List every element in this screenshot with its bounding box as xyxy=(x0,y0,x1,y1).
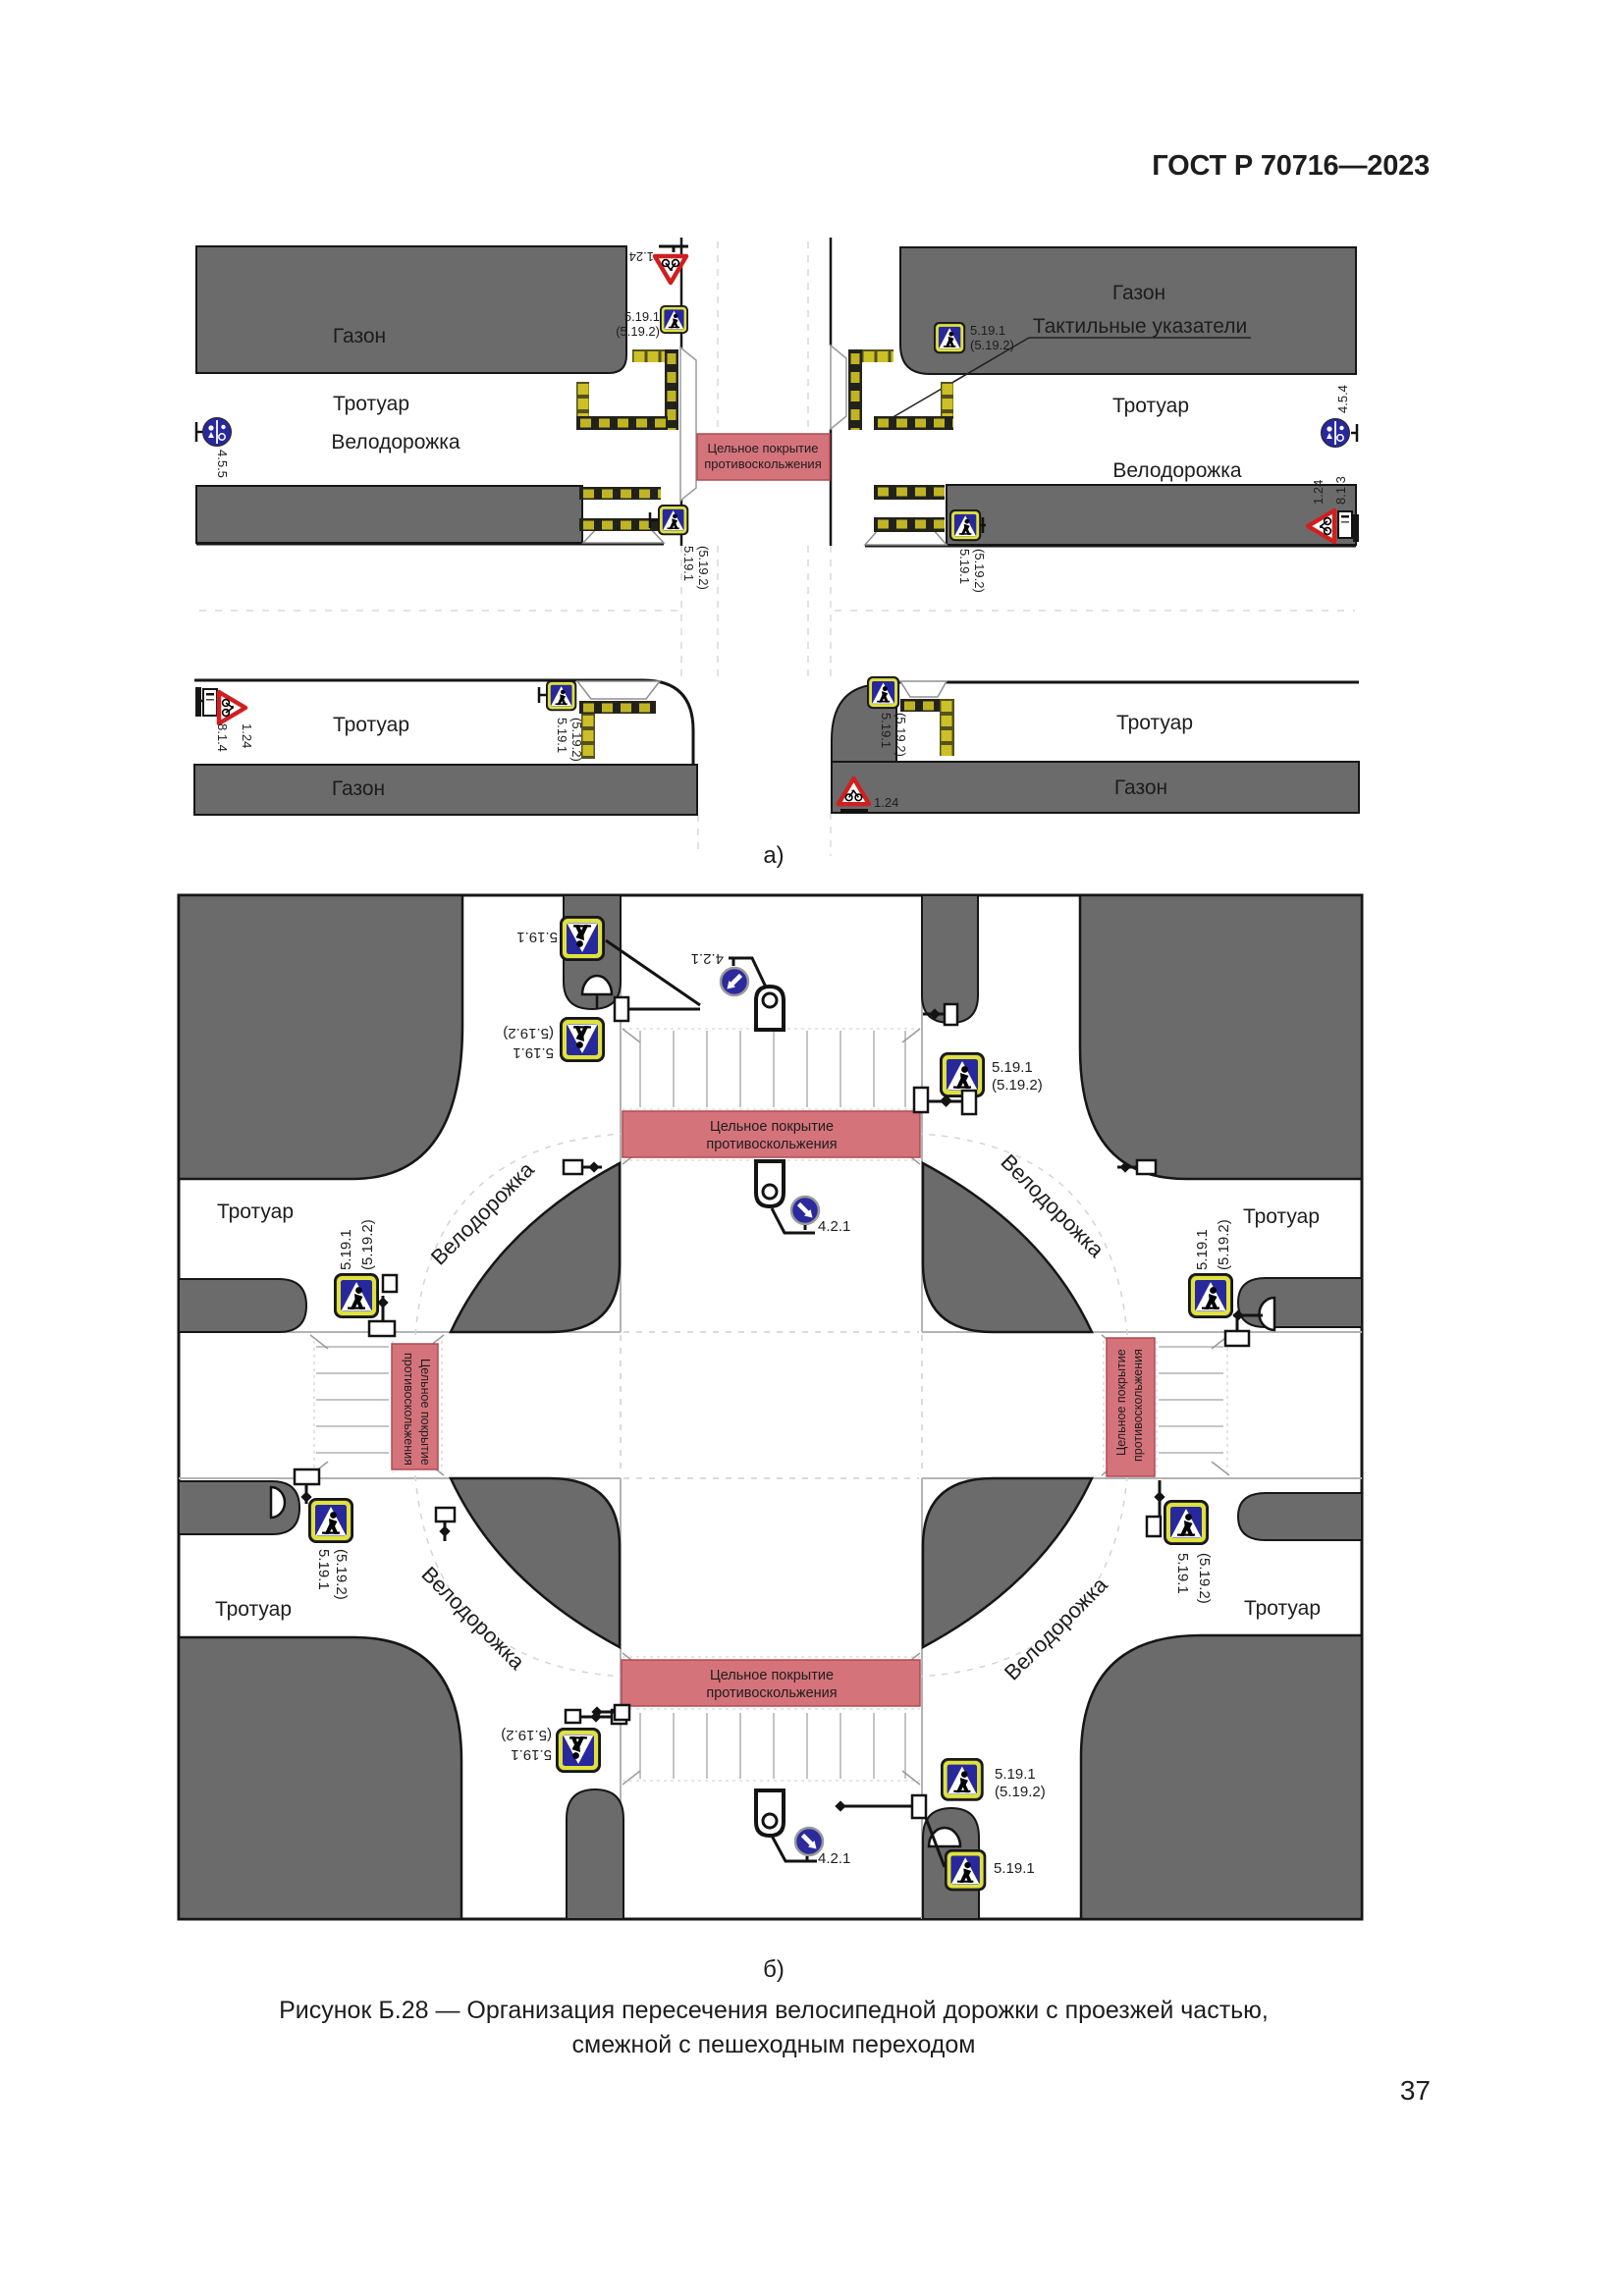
svg-text:(5.19.2): (5.19.2) xyxy=(501,1727,552,1743)
svg-text:5.19.1: 5.19.1 xyxy=(315,1549,332,1590)
svg-text:1.24: 1.24 xyxy=(1311,480,1326,505)
svg-text:Газон: Газон xyxy=(1112,282,1165,304)
svg-text:(5.19.2): (5.19.2) xyxy=(359,1219,376,1270)
svg-text:(5.19.2): (5.19.2) xyxy=(616,324,660,339)
svg-text:Цельное покрытие: Цельное покрытие xyxy=(710,1668,834,1683)
svg-text:противоскольжения: противоскольжения xyxy=(706,1137,837,1152)
svg-text:Цельное покрытие: Цельное покрытие xyxy=(1114,1349,1128,1456)
svg-text:ГОСТ Р 70716—2023: ГОСТ Р 70716—2023 xyxy=(1152,150,1430,182)
svg-text:противоскольжения: противоскольжения xyxy=(1131,1349,1145,1462)
svg-text:8.1.4: 8.1.4 xyxy=(215,723,230,752)
svg-text:4.2.1: 4.2.1 xyxy=(818,1218,850,1235)
svg-text:Тротуар: Тротуар xyxy=(1112,395,1189,417)
svg-text:Тактильные указатели: Тактильные указатели xyxy=(1033,315,1248,338)
svg-text:(5.19.2): (5.19.2) xyxy=(995,1784,1046,1800)
svg-text:Тротуар: Тротуар xyxy=(1116,712,1193,734)
svg-text:5.19.1: 5.19.1 xyxy=(338,1229,354,1270)
svg-text:4.5.5: 4.5.5 xyxy=(215,450,230,478)
svg-text:Тротуар: Тротуар xyxy=(1244,1597,1321,1620)
svg-text:Газон: Газон xyxy=(333,325,386,347)
svg-text:5.19.1: 5.19.1 xyxy=(555,718,569,753)
svg-text:Цельное покрытие: Цельное покрытие xyxy=(707,441,818,455)
svg-text:4.2.1: 4.2.1 xyxy=(691,950,724,967)
svg-text:противоскольжения: противоскольжения xyxy=(704,456,821,471)
svg-text:смежной с пешеходным переходом: смежной с пешеходным переходом xyxy=(572,2031,976,2058)
svg-text:5.19.1: 5.19.1 xyxy=(1194,1229,1211,1270)
svg-text:1.24: 1.24 xyxy=(240,723,254,748)
svg-text:(5.19.2): (5.19.2) xyxy=(696,546,711,590)
svg-text:Велодорожка: Велодорожка xyxy=(331,431,460,454)
svg-text:5.19.1: 5.19.1 xyxy=(995,1766,1036,1783)
svg-text:(5.19.2): (5.19.2) xyxy=(1216,1219,1232,1270)
svg-text:(5.19.2): (5.19.2) xyxy=(1196,1553,1213,1604)
svg-text:б): б) xyxy=(763,1956,785,1983)
svg-text:8.1.3: 8.1.3 xyxy=(1333,476,1348,505)
svg-text:Цельное покрытие: Цельное покрытие xyxy=(418,1359,432,1466)
svg-text:Газон: Газон xyxy=(1114,776,1167,799)
svg-text:Велодорожка: Велодорожка xyxy=(1112,459,1241,482)
svg-text:5.19.1: 5.19.1 xyxy=(511,1746,552,1763)
svg-text:Тротуар: Тротуар xyxy=(215,1598,292,1621)
svg-text:5.19.1: 5.19.1 xyxy=(1174,1553,1191,1594)
svg-text:5.19.1: 5.19.1 xyxy=(879,713,893,748)
svg-text:5.19.1: 5.19.1 xyxy=(992,1059,1033,1076)
svg-text:5.19.1: 5.19.1 xyxy=(957,549,972,584)
svg-text:(5.19.2): (5.19.2) xyxy=(972,549,987,593)
svg-text:(5.19.2): (5.19.2) xyxy=(970,338,1014,352)
svg-text:4.5.4: 4.5.4 xyxy=(1335,385,1350,413)
svg-text:5.19.1: 5.19.1 xyxy=(994,1860,1035,1877)
svg-text:противоскольжения: противоскольжения xyxy=(402,1353,415,1466)
svg-text:(5.19.2): (5.19.2) xyxy=(333,1549,350,1600)
svg-text:4.2.1: 4.2.1 xyxy=(818,1850,850,1867)
svg-text:5.19.1: 5.19.1 xyxy=(516,929,558,945)
svg-text:1.24: 1.24 xyxy=(874,795,898,810)
svg-text:5.19.1: 5.19.1 xyxy=(624,309,660,324)
svg-text:Рисунок Б.28 — Организация пер: Рисунок Б.28 — Организация пересечения в… xyxy=(279,1997,1269,2024)
svg-text:37: 37 xyxy=(1400,2075,1431,2106)
svg-text:(5.19.2): (5.19.2) xyxy=(893,713,908,757)
svg-text:5.19.1: 5.19.1 xyxy=(681,546,696,581)
svg-text:Тротуар: Тротуар xyxy=(333,393,409,415)
svg-text:а): а) xyxy=(763,842,784,869)
svg-text:Цельное покрытие: Цельное покрытие xyxy=(710,1119,834,1135)
svg-text:1.24: 1.24 xyxy=(629,249,654,264)
svg-text:Тротуар: Тротуар xyxy=(333,714,409,736)
svg-text:Газон: Газон xyxy=(332,777,385,800)
svg-text:противоскольжения: противоскольжения xyxy=(706,1685,837,1701)
svg-text:(5.19.2): (5.19.2) xyxy=(992,1077,1043,1094)
svg-text:5.19.1: 5.19.1 xyxy=(970,323,1005,338)
svg-text:(5.19.2): (5.19.2) xyxy=(503,1025,554,1041)
svg-text:5.19.1: 5.19.1 xyxy=(513,1044,554,1061)
svg-text:Тротуар: Тротуар xyxy=(217,1201,294,1223)
svg-text:Тротуар: Тротуар xyxy=(1243,1205,1320,1228)
